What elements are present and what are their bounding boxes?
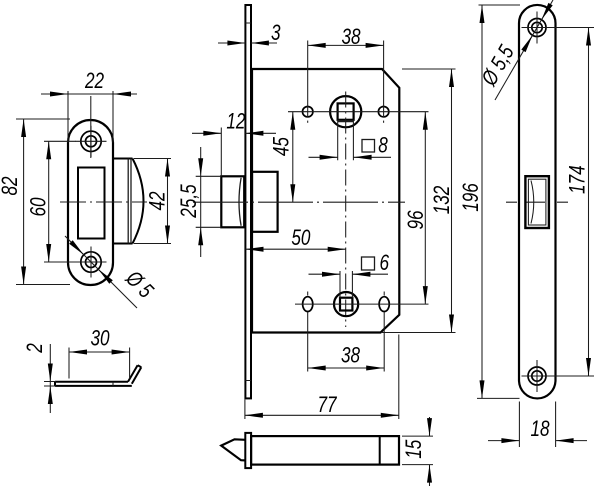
svg-text:60: 60 xyxy=(27,197,52,216)
svg-text:25,5: 25,5 xyxy=(177,183,202,218)
svg-text:174: 174 xyxy=(566,165,591,194)
svg-text:42: 42 xyxy=(146,191,171,210)
svg-text:82: 82 xyxy=(0,176,23,195)
svg-text:38: 38 xyxy=(341,344,360,369)
svg-text:196: 196 xyxy=(459,183,484,212)
svg-text:22: 22 xyxy=(84,69,104,94)
svg-text:30: 30 xyxy=(90,327,109,352)
svg-text:Ø 5,5: Ø 5,5 xyxy=(477,41,520,91)
svg-text:132: 132 xyxy=(430,186,455,215)
svg-text:12: 12 xyxy=(226,109,245,134)
svg-text:18: 18 xyxy=(530,417,549,442)
svg-text:38: 38 xyxy=(341,25,360,50)
svg-text:96: 96 xyxy=(404,210,429,229)
svg-text:15: 15 xyxy=(402,439,427,459)
svg-text:77: 77 xyxy=(317,393,337,418)
svg-text:2: 2 xyxy=(23,343,48,353)
svg-text:3: 3 xyxy=(271,21,281,46)
svg-text:50: 50 xyxy=(291,226,310,251)
svg-text:Ø 5: Ø 5 xyxy=(120,266,158,304)
svg-text:45: 45 xyxy=(270,136,295,156)
svg-text:8: 8 xyxy=(378,134,388,159)
svg-text:6: 6 xyxy=(380,251,390,276)
